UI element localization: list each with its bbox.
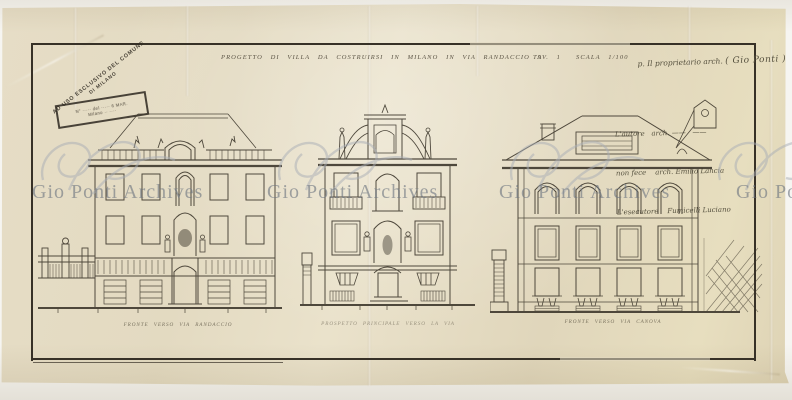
elevation-caption-canova: FRONTE VERSO VIA CANOVA: [565, 319, 662, 325]
scanned-sheet: PROGETTO DI VILLA DA COSTRUIRSI IN MILAN…: [0, 0, 792, 400]
elevation-drawing-main-front: [300, 103, 475, 313]
elevation-caption-main: PROSPETTO PRINCIPALE VERSO LA VIA: [321, 321, 455, 327]
sheet-number: TAV. 1: [533, 54, 561, 61]
architect-signature: ( Gio Ponti ): [725, 54, 786, 66]
scale-label: SCALA 1/100: [576, 54, 629, 61]
border-fade: [470, 42, 630, 46]
handwritten-note-proprietor: p. Il proprietario arch. ( Gio Ponti ): [628, 45, 787, 79]
elevation-caption-randaccio: FRONTE VERSO VIA RANDACCIO: [124, 322, 233, 328]
border-fade: [560, 357, 710, 361]
elevation-drawing-via-randaccio: [38, 108, 290, 315]
drawing-border-left: [31, 43, 33, 361]
drawing-border-bottom-echo: [33, 362, 283, 363]
proprietor-text: p. Il proprietario arch.: [637, 56, 725, 68]
elevation-drawing-side-front: [490, 98, 765, 320]
sheet-title: PROGETTO DI VILLA DA COSTRUIRSI IN MILAN…: [221, 54, 542, 61]
